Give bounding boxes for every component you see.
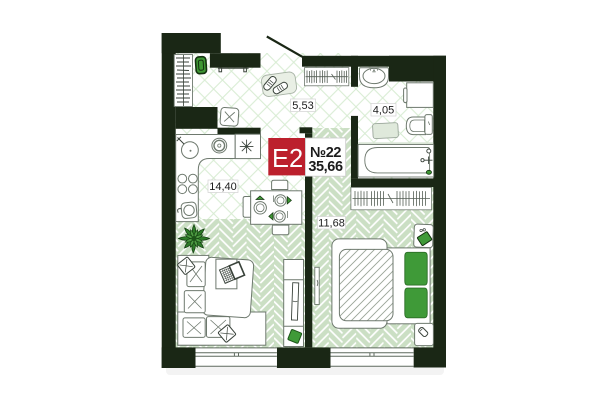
svg-text:11,68: 11,68 — [318, 217, 345, 229]
svg-text:5,53: 5,53 — [292, 100, 313, 112]
svg-text:14,40: 14,40 — [209, 181, 237, 193]
svg-text:E2: E2 — [272, 145, 303, 173]
svg-text:35,66: 35,66 — [308, 159, 343, 175]
svg-text:4,05: 4,05 — [373, 104, 394, 116]
